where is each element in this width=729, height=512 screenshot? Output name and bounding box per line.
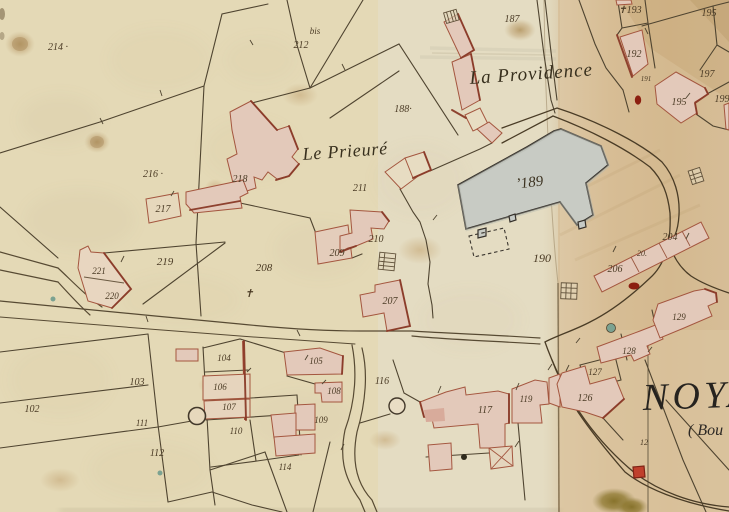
svg-text:NOYA: NOYA	[641, 373, 729, 419]
svg-text:209: 209	[330, 248, 345, 259]
svg-text:216 ·: 216 ·	[143, 169, 163, 180]
svg-text:199: 199	[715, 94, 729, 105]
svg-text:221: 221	[92, 266, 106, 276]
svg-text:( Bou: ( Bou	[688, 422, 723, 439]
svg-text:112: 112	[150, 448, 164, 459]
svg-text:12: 12	[640, 438, 648, 447]
svg-text:214 ·: 214 ·	[48, 42, 68, 53]
svg-text:105: 105	[309, 356, 323, 366]
svg-text:103: 103	[130, 377, 145, 388]
svg-text:104: 104	[217, 353, 231, 363]
svg-text:119: 119	[520, 394, 533, 404]
svg-text:208: 208	[256, 262, 273, 274]
svg-text:212: 212	[294, 40, 309, 51]
svg-text:114: 114	[279, 462, 292, 472]
svg-text:211: 211	[353, 183, 367, 194]
svg-text:188·: 188·	[394, 104, 412, 115]
svg-text:✝: ✝	[244, 288, 253, 300]
svg-text:20.: 20.	[637, 249, 647, 258]
svg-text:109: 109	[314, 415, 328, 425]
svg-text:206: 206	[608, 264, 623, 275]
svg-text:106: 106	[213, 382, 227, 392]
svg-text:✝193: ✝193	[618, 5, 641, 16]
svg-text:207: 207	[383, 296, 399, 307]
svg-text:107: 107	[222, 402, 236, 412]
svg-text:218: 218	[233, 174, 248, 185]
svg-text:195: 195	[672, 97, 687, 108]
svg-text:204: 204	[663, 232, 678, 243]
svg-text:128: 128	[622, 346, 636, 356]
svg-text:220: 220	[105, 291, 119, 301]
svg-text:190: 190	[533, 251, 551, 265]
svg-text:108: 108	[327, 386, 341, 396]
svg-text:117: 117	[478, 405, 493, 416]
svg-text:219: 219	[157, 256, 174, 268]
svg-text:102: 102	[25, 404, 40, 415]
svg-text:187: 187	[505, 14, 521, 25]
svg-text:210: 210	[369, 234, 384, 245]
svg-text:197: 197	[700, 69, 716, 80]
svg-text:110: 110	[230, 426, 243, 436]
svg-text:195: 195	[702, 8, 717, 19]
svg-text:ʼ189: ʼ189	[515, 173, 545, 192]
svg-text:116: 116	[375, 376, 389, 387]
svg-text:217: 217	[156, 204, 172, 215]
svg-text:191: 191	[641, 75, 652, 83]
svg-text:127: 127	[588, 367, 602, 377]
svg-text:bis: bis	[310, 26, 321, 36]
svg-text:129: 129	[672, 312, 686, 322]
svg-text:192: 192	[627, 49, 642, 60]
svg-text:111: 111	[136, 418, 148, 428]
svg-text:126: 126	[578, 393, 593, 404]
